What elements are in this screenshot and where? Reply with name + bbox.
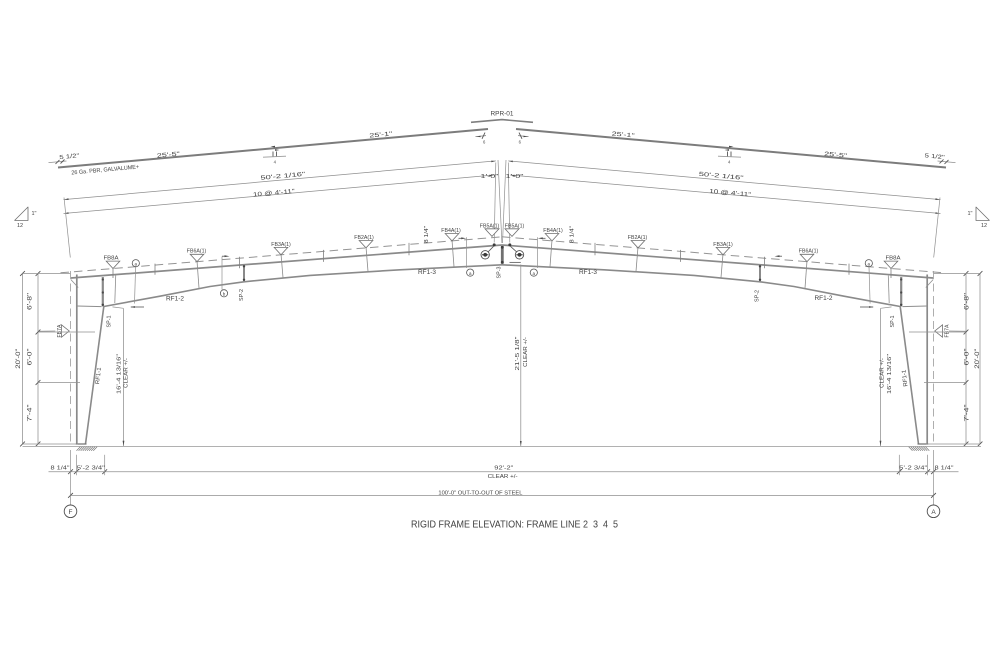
svg-text:7'-4": 7'-4" <box>28 405 34 422</box>
svg-text:A: A <box>931 509 936 516</box>
svg-text:7'-4": 7'-4" <box>965 405 971 422</box>
svg-text:CLEAR +/-: CLEAR +/- <box>488 474 518 480</box>
svg-text:FB5A(1): FB5A(1) <box>505 223 525 229</box>
svg-text:RF1-3: RF1-3 <box>418 270 437 276</box>
svg-text:CLEAR +/-: CLEAR +/- <box>124 358 130 388</box>
svg-text:FB6A(1): FB6A(1) <box>187 249 207 255</box>
svg-text:20'-0": 20'-0" <box>16 349 22 369</box>
svg-text:FB4A(1): FB4A(1) <box>441 228 461 234</box>
svg-text:SP-1: SP-1 <box>107 316 113 328</box>
svg-text:SP-3: SP-3 <box>497 267 503 279</box>
svg-text:FB5A(1): FB5A(1) <box>480 223 500 229</box>
svg-text:16'-4 13/16": 16'-4 13/16" <box>117 354 123 394</box>
svg-text:FB2A(1): FB2A(1) <box>354 235 374 241</box>
svg-text:5'-2 3/4": 5'-2 3/4" <box>899 465 927 471</box>
svg-text:CLEAR +/-: CLEAR +/- <box>523 337 529 367</box>
svg-text:RF1-2: RF1-2 <box>166 297 185 303</box>
svg-text:SP-1: SP-1 <box>890 316 896 328</box>
svg-text:1'-0": 1'-0" <box>481 174 499 180</box>
svg-text:FB6A(1): FB6A(1) <box>799 249 819 255</box>
svg-text:5'-2 3/4": 5'-2 3/4" <box>77 465 105 471</box>
svg-text:FB3A(1): FB3A(1) <box>713 242 733 248</box>
svg-text:FB7A: FB7A <box>57 324 63 337</box>
svg-text:8 1/4": 8 1/4" <box>935 465 954 471</box>
svg-text:RF1-3: RF1-3 <box>579 270 598 276</box>
svg-text:1": 1" <box>967 211 972 217</box>
svg-text:SP-2: SP-2 <box>755 290 761 302</box>
svg-text:6'-0": 6'-0" <box>28 349 34 366</box>
svg-text:100'-0" OUT-TO-OUT OF STEEL: 100'-0" OUT-TO-OUT OF STEEL <box>438 490 523 496</box>
svg-text:6'-8": 6'-8" <box>965 293 971 310</box>
svg-text:8 1/4": 8 1/4" <box>51 465 70 471</box>
svg-text:FB8A: FB8A <box>104 256 119 262</box>
svg-text:FB8A: FB8A <box>886 256 901 262</box>
svg-text:F: F <box>69 509 73 516</box>
svg-text:1'-0": 1'-0" <box>506 174 524 180</box>
svg-text:6'-0": 6'-0" <box>965 349 971 366</box>
svg-text:FB2A(1): FB2A(1) <box>628 235 648 241</box>
svg-text:16'-4 13/16": 16'-4 13/16" <box>887 354 893 394</box>
svg-text:CLEAR +/-: CLEAR +/- <box>880 358 886 388</box>
svg-text:RF1-2: RF1-2 <box>815 296 834 302</box>
svg-text:RPR-01: RPR-01 <box>491 111 515 118</box>
svg-text:RIGID FRAME ELEVATION: FRAME L: RIGID FRAME ELEVATION: FRAME LINE 2 3 4 … <box>411 519 618 531</box>
svg-text:FB3A(1): FB3A(1) <box>271 242 291 248</box>
svg-text:6'-8": 6'-8" <box>28 293 34 310</box>
svg-text:1": 1" <box>32 211 37 217</box>
svg-text:8 1/4": 8 1/4" <box>570 226 576 243</box>
svg-text:12: 12 <box>981 223 987 229</box>
svg-text:8 1/4": 8 1/4" <box>424 226 430 243</box>
svg-text:SP-2: SP-2 <box>239 289 245 301</box>
svg-text:FB4A(1): FB4A(1) <box>543 228 563 234</box>
svg-text:20'-0": 20'-0" <box>975 349 981 369</box>
svg-text:12: 12 <box>17 223 23 229</box>
svg-text:21'-5 1/8": 21'-5 1/8" <box>515 337 521 371</box>
svg-text:92'-2": 92'-2" <box>494 466 513 472</box>
